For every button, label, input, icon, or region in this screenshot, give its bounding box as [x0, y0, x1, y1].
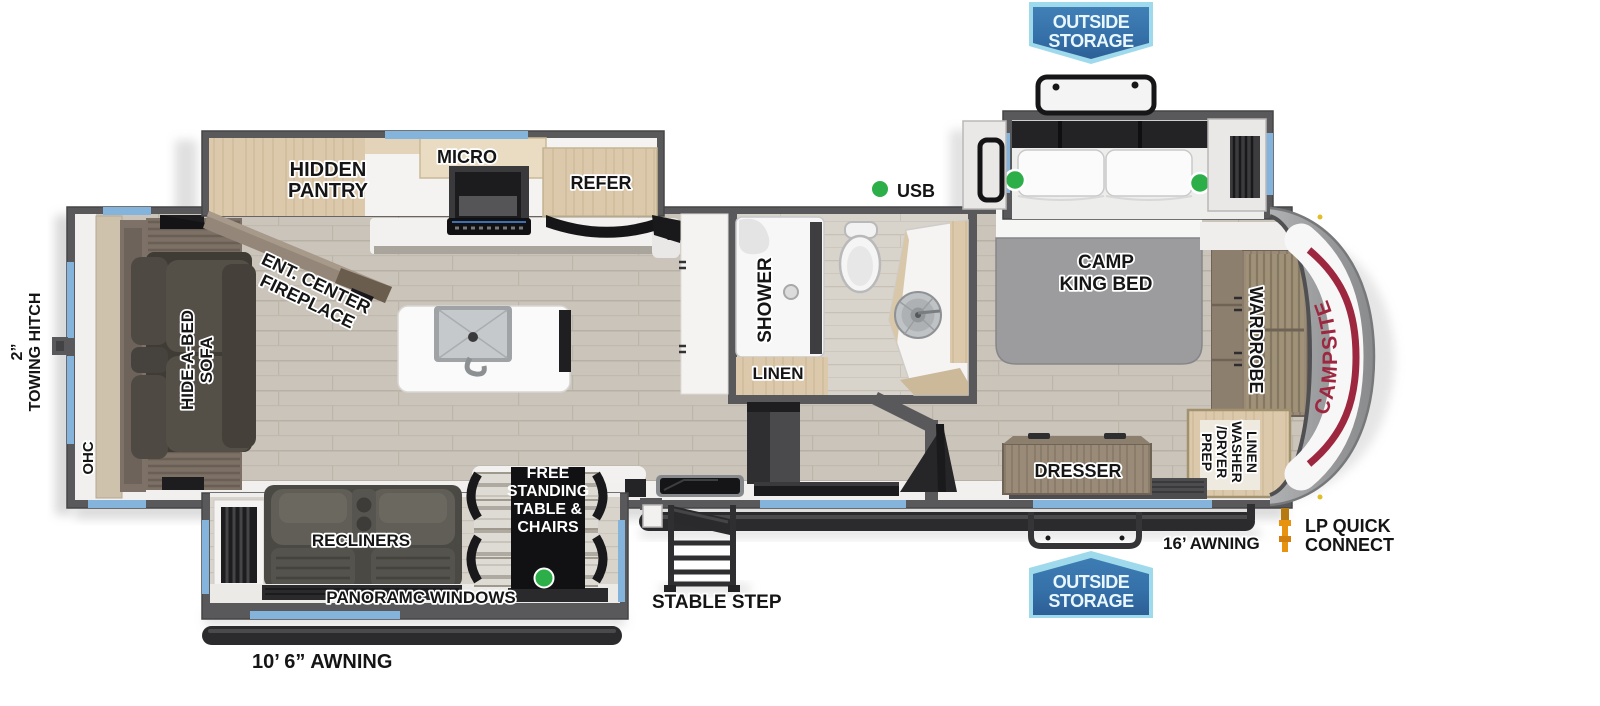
svg-text:PANORAMC WINDOWS: PANORAMC WINDOWS [326, 588, 516, 607]
svg-text:PREP: PREP [1199, 433, 1215, 471]
svg-text:LP QUICK: LP QUICK [1305, 516, 1391, 536]
svg-text:2”: 2” [9, 344, 26, 361]
svg-text:MICRO: MICRO [437, 147, 497, 167]
svg-text:OUTSIDE: OUTSIDE [1053, 12, 1130, 32]
svg-text:CAMP: CAMP [1078, 252, 1134, 273]
svg-text:HIDE-A-BED: HIDE-A-BED [178, 310, 197, 410]
svg-text:WARDROBE: WARDROBE [1246, 287, 1266, 394]
svg-text:STABLE STEP: STABLE STEP [652, 592, 782, 613]
svg-text:TOWING HITCH: TOWING HITCH [27, 293, 44, 412]
svg-text:DRESSER: DRESSER [1034, 461, 1121, 481]
svg-text:RECLINERS: RECLINERS [312, 531, 410, 550]
svg-text:PANTRY: PANTRY [288, 180, 369, 202]
svg-text:WASHER: WASHER [1229, 421, 1245, 482]
svg-text:HIDDEN: HIDDEN [290, 159, 367, 181]
svg-text:TABLE &: TABLE & [514, 501, 583, 518]
svg-text:CHAIRS: CHAIRS [517, 519, 579, 536]
svg-text:CONNECT: CONNECT [1305, 535, 1394, 555]
svg-text:16’ AWNING: 16’ AWNING [1163, 534, 1260, 553]
svg-text:FREE: FREE [527, 465, 570, 482]
svg-text:OUTSIDE: OUTSIDE [1053, 572, 1130, 592]
svg-text:STORAGE: STORAGE [1048, 31, 1134, 51]
svg-text:/DRYER: /DRYER [1214, 426, 1230, 478]
svg-text:LINEN: LINEN [1244, 431, 1260, 473]
svg-text:SHOWER: SHOWER [755, 257, 776, 343]
svg-text:STORAGE: STORAGE [1048, 591, 1134, 611]
svg-text:SOFA: SOFA [197, 337, 216, 383]
svg-text:OHC: OHC [80, 441, 97, 475]
svg-text:STANDING: STANDING [507, 483, 589, 500]
svg-text:KING BED: KING BED [1060, 274, 1153, 295]
svg-text:10’ 6” AWNING: 10’ 6” AWNING [252, 651, 392, 673]
svg-text:USB: USB [897, 181, 935, 201]
svg-text:LINEN: LINEN [753, 364, 804, 383]
svg-text:REFER: REFER [570, 173, 631, 193]
